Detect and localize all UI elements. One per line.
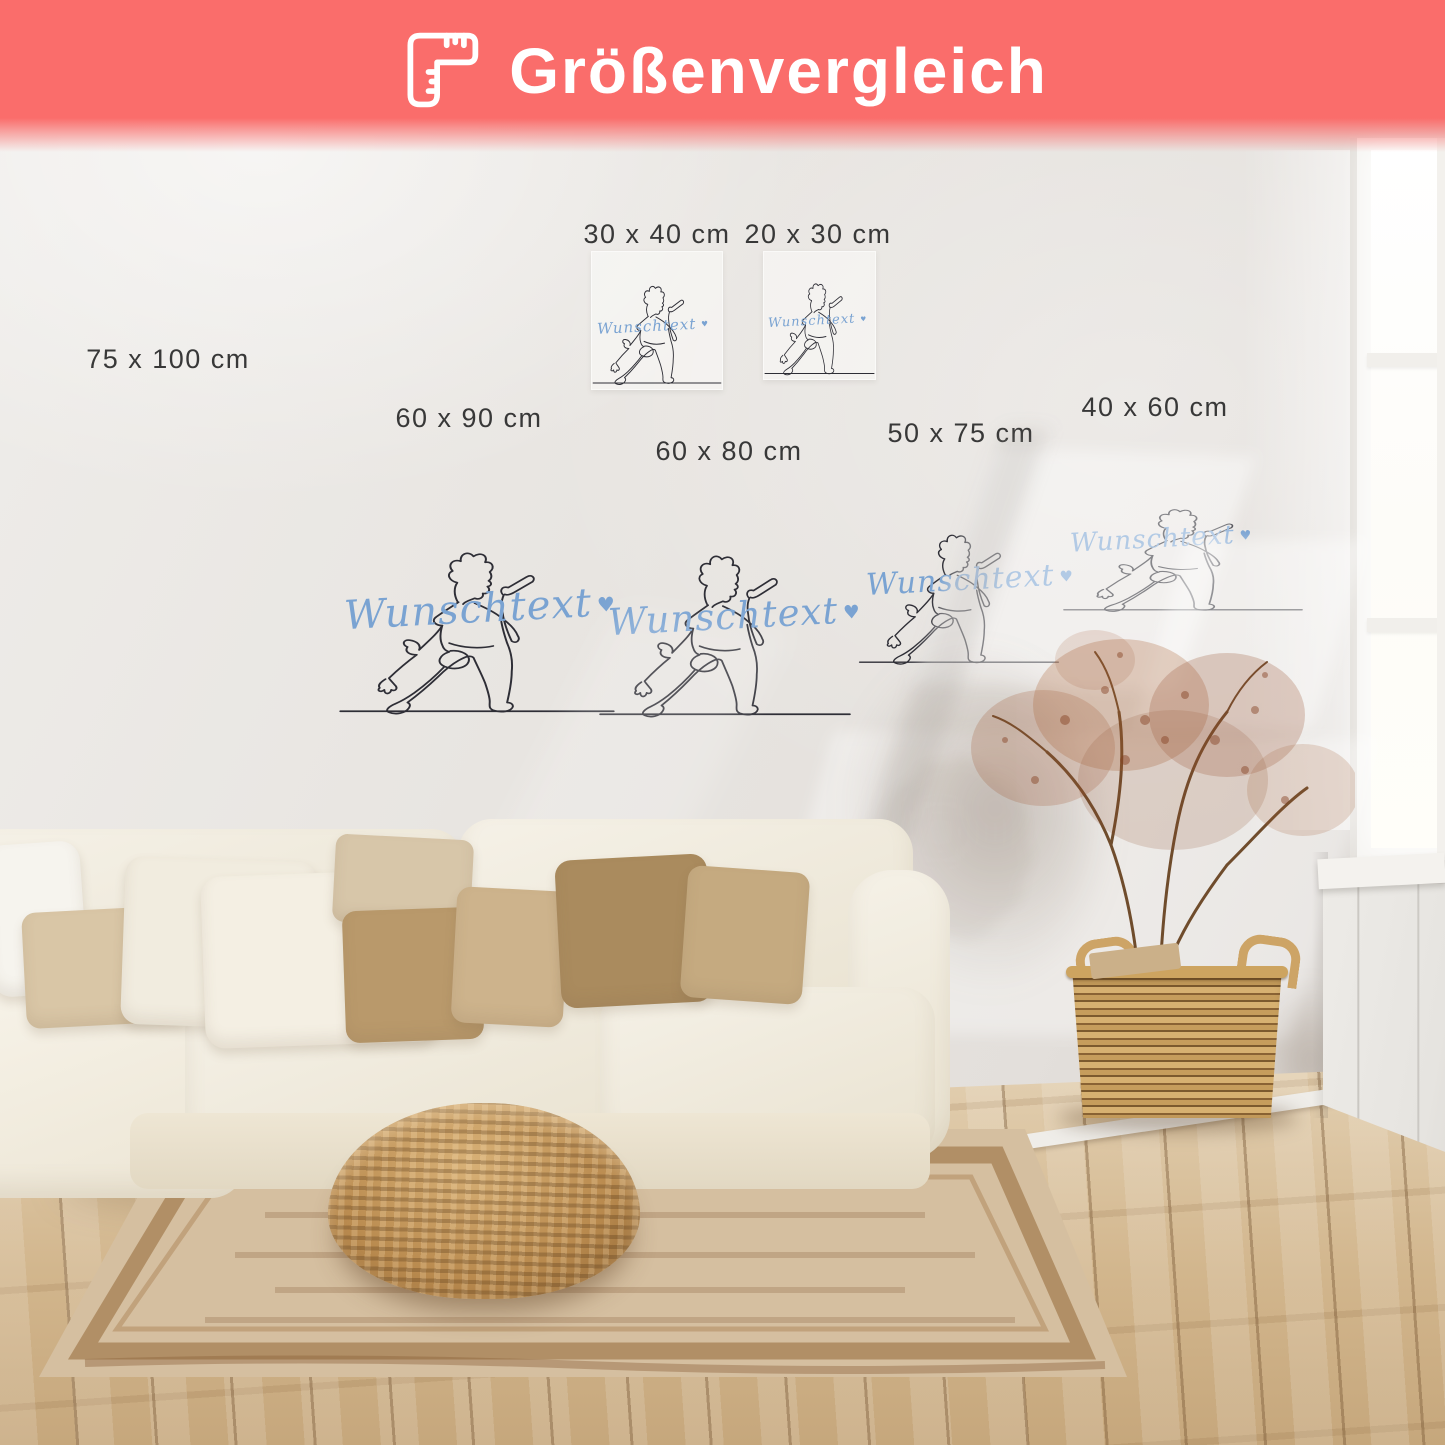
size-label-75x100: 75 x 100 cm: [86, 344, 250, 375]
window-mullion: [1367, 353, 1445, 367]
size-label-60x90: 60 x 90 cm: [395, 403, 542, 434]
pillow-light-brown: [680, 865, 811, 1005]
window-frame: [1437, 138, 1445, 860]
wicker-basket: [1068, 972, 1286, 1118]
pillow-tan: [451, 886, 570, 1028]
banner-title: Größenvergleich: [509, 26, 1048, 116]
poster-30x40: Wunschtext♥: [591, 251, 723, 390]
size-label-60x80: 60 x 80 cm: [655, 436, 802, 467]
heart-icon: ♥: [860, 314, 867, 322]
size-label-30x40: 30 x 40 cm: [583, 219, 730, 250]
size-comparison-banner: Größenvergleich: [0, 0, 1445, 158]
window-mullion: [1367, 618, 1445, 632]
poster-60x90: Wunschtext♥: [338, 497, 616, 721]
window-glass: [1371, 150, 1445, 848]
product-size-comparison-scene: 75 x 100 cm 30 x 40 cm 20 x 30 cm 60 x 9…: [0, 0, 1445, 1445]
heart-icon: ♥: [701, 319, 709, 328]
corner-ruler-icon: [397, 28, 483, 114]
size-label-20x30: 20 x 30 cm: [744, 219, 891, 250]
size-label-40x60: 40 x 60 cm: [1081, 392, 1228, 423]
poster-20x30: Wunschtext♥: [763, 251, 876, 380]
